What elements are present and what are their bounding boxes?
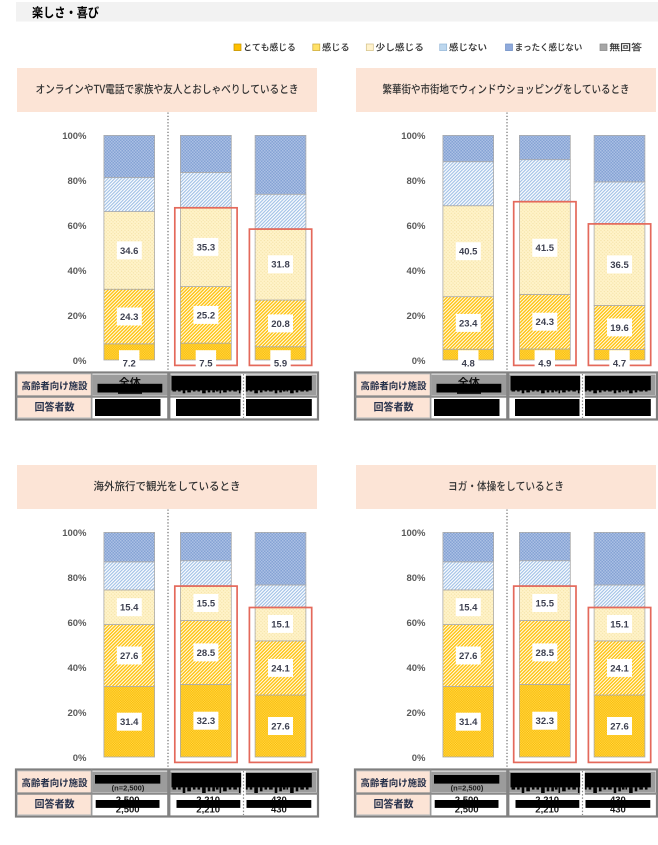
svg-text:20%: 20%: [67, 708, 87, 719]
svg-text:60%: 60%: [67, 618, 87, 629]
svg-text:32.3: 32.3: [536, 716, 555, 727]
svg-text:32.3: 32.3: [197, 716, 216, 727]
svg-text:100%: 100%: [62, 131, 87, 142]
svg-text:(n=2,500): (n=2,500): [451, 784, 484, 793]
svg-text:7.2: 7.2: [123, 358, 136, 369]
svg-text:5.9: 5.9: [274, 358, 287, 369]
svg-text:36.5: 36.5: [610, 260, 629, 271]
svg-text:15.1: 15.1: [271, 619, 290, 630]
svg-text:40%: 40%: [67, 266, 87, 277]
svg-text:0%: 0%: [412, 753, 426, 764]
svg-text:0%: 0%: [412, 356, 426, 367]
svg-text:28.5: 28.5: [197, 648, 216, 659]
svg-text:24.1: 24.1: [610, 663, 629, 674]
svg-text:15.4: 15.4: [459, 603, 478, 614]
svg-text:28.5: 28.5: [536, 648, 555, 659]
svg-text:0%: 0%: [73, 356, 87, 367]
svg-text:23.4: 23.4: [459, 318, 478, 329]
svg-text:7.5: 7.5: [199, 358, 213, 369]
svg-text:15.1: 15.1: [610, 619, 629, 630]
svg-text:27.6: 27.6: [271, 721, 290, 732]
svg-text:24.3: 24.3: [120, 312, 139, 323]
svg-text:80%: 80%: [67, 573, 87, 584]
svg-text:27.6: 27.6: [120, 651, 139, 662]
svg-text:27.6: 27.6: [610, 721, 629, 732]
svg-text:20%: 20%: [67, 311, 87, 322]
svg-text:100%: 100%: [401, 528, 426, 539]
svg-text:34.6: 34.6: [120, 246, 139, 257]
svg-text:100%: 100%: [62, 528, 87, 539]
svg-text:40%: 40%: [406, 663, 426, 674]
svg-text:35.3: 35.3: [197, 242, 216, 253]
svg-text:31.4: 31.4: [120, 717, 139, 728]
svg-text:20%: 20%: [406, 708, 426, 719]
svg-text:60%: 60%: [406, 618, 426, 629]
svg-text:4.9: 4.9: [538, 358, 551, 369]
svg-text:27.6: 27.6: [459, 651, 478, 662]
svg-text:4.8: 4.8: [462, 358, 475, 369]
svg-text:0%: 0%: [73, 753, 87, 764]
svg-text:25.2: 25.2: [197, 310, 216, 321]
svg-text:60%: 60%: [67, 221, 87, 232]
svg-text:31.4: 31.4: [459, 717, 478, 728]
svg-text:4.7: 4.7: [613, 358, 626, 369]
svg-text:41.5: 41.5: [536, 243, 555, 254]
svg-text:15.5: 15.5: [197, 598, 216, 609]
svg-text:31.8: 31.8: [271, 260, 290, 271]
svg-text:19.6: 19.6: [610, 323, 629, 334]
svg-text:20.8: 20.8: [271, 319, 290, 330]
svg-text:80%: 80%: [406, 573, 426, 584]
svg-text:15.4: 15.4: [120, 603, 139, 614]
svg-text:(n=2,500): (n=2,500): [112, 784, 145, 793]
svg-text:60%: 60%: [406, 221, 426, 232]
svg-text:15.5: 15.5: [536, 598, 555, 609]
svg-text:40%: 40%: [406, 266, 426, 277]
svg-text:100%: 100%: [401, 131, 426, 142]
svg-text:40.5: 40.5: [459, 247, 478, 258]
svg-text:80%: 80%: [67, 176, 87, 187]
svg-text:24.3: 24.3: [536, 317, 555, 328]
svg-text:40%: 40%: [67, 663, 87, 674]
svg-text:24.1: 24.1: [271, 663, 290, 674]
svg-text:80%: 80%: [406, 176, 426, 187]
svg-text:20%: 20%: [406, 311, 426, 322]
